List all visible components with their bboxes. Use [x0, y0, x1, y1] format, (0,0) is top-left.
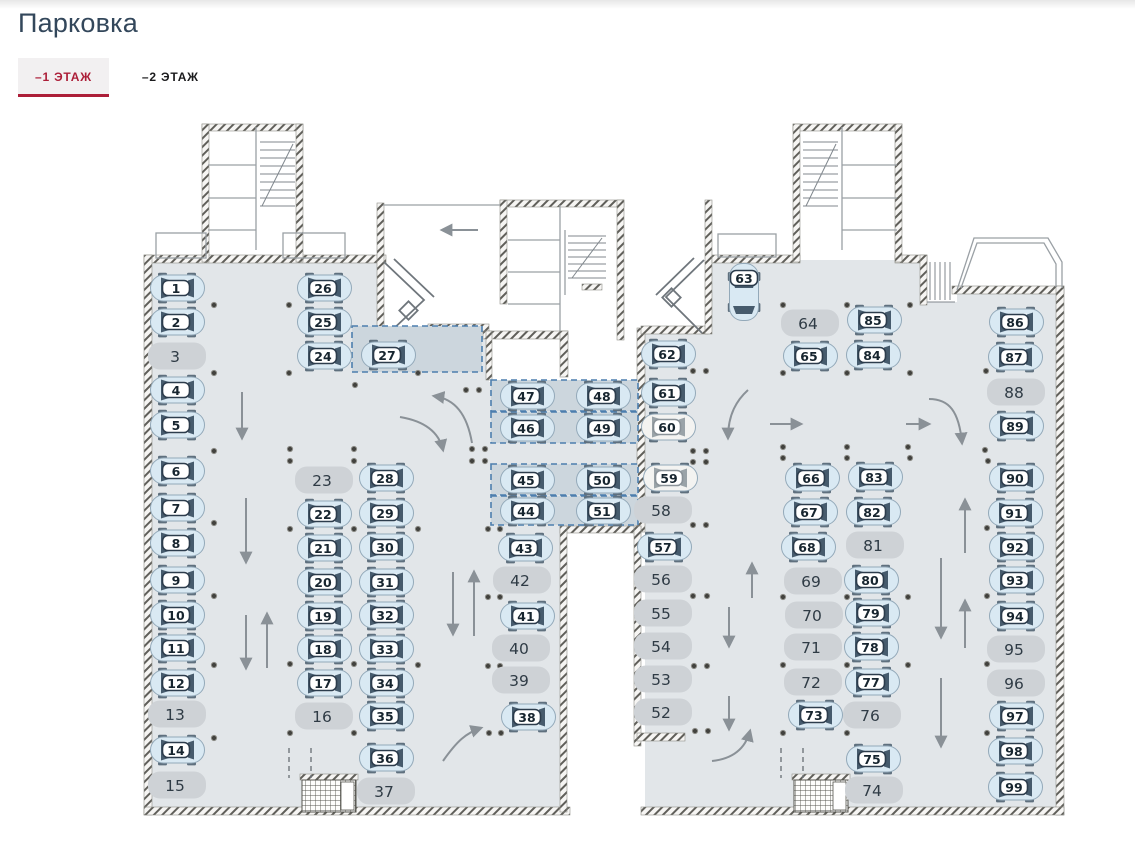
- spot-number: 91: [1005, 506, 1022, 521]
- parking-spot-58[interactable]: 58: [634, 497, 692, 524]
- pillar-dot: [286, 370, 291, 375]
- parking-spot-12[interactable]: 12: [151, 668, 205, 699]
- pillar-dot: [905, 662, 910, 667]
- parking-spot-54[interactable]: 54: [634, 633, 692, 660]
- spot-number: 81: [863, 537, 883, 555]
- pillar-dot: [780, 662, 785, 667]
- spot-number: 68: [798, 540, 815, 555]
- pillar-dot: [704, 663, 709, 668]
- parking-spot-92[interactable]: 92: [990, 532, 1044, 563]
- spot-number: 70: [802, 607, 822, 625]
- spot-number: 93: [1006, 573, 1023, 588]
- pillar-dot: [844, 302, 849, 307]
- parking-spot-82[interactable]: 82: [847, 497, 901, 528]
- spot-number: 34: [376, 676, 394, 691]
- parking-spot-11[interactable]: 11: [151, 633, 205, 664]
- spot-number: 85: [864, 313, 881, 328]
- parking-spot-96[interactable]: 96: [987, 670, 1045, 697]
- parking-spot-63[interactable]: 63: [728, 264, 761, 321]
- parking-spot-48[interactable]: 48: [577, 381, 631, 412]
- pillar-dot: [485, 594, 490, 599]
- spot-number: 26: [314, 281, 332, 296]
- parking-spot-99[interactable]: 99: [989, 772, 1043, 803]
- pillar-dot: [983, 368, 988, 373]
- spot-number: 72: [801, 674, 821, 692]
- parking-spot-30[interactable]: 30: [360, 532, 414, 563]
- spot-number: 58: [651, 502, 671, 520]
- spot-number: 78: [861, 640, 878, 655]
- spot-number: 65: [800, 349, 817, 364]
- parking-spot-9[interactable]: 9: [151, 565, 205, 596]
- parking-spot-18[interactable]: 18: [298, 634, 352, 665]
- spot-number: 28: [376, 471, 393, 486]
- parking-spot-16[interactable]: 16: [295, 703, 353, 730]
- pillar-dot: [351, 661, 356, 666]
- spot-number: 47: [517, 389, 534, 404]
- spot-number: 32: [376, 608, 393, 623]
- pillar-dot: [287, 446, 292, 451]
- parking-spot-79[interactable]: 79: [846, 598, 900, 629]
- pillar-dot: [690, 593, 695, 598]
- spot-number: 15: [165, 777, 185, 795]
- parking-spot-60[interactable]: 60: [642, 412, 696, 443]
- pillar-dot: [780, 370, 785, 375]
- spot-number: 42: [510, 572, 530, 590]
- pillar-dot: [907, 302, 912, 307]
- pillar-dot: [497, 594, 502, 599]
- pillar-dot: [482, 458, 487, 463]
- pillar-dot: [704, 593, 709, 598]
- pillar-dot: [469, 458, 474, 463]
- parking-spot-38[interactable]: 38: [502, 702, 556, 733]
- spot-number: 41: [517, 609, 534, 624]
- parking-spot-83[interactable]: 83: [849, 462, 903, 493]
- pillar-dot: [984, 525, 989, 530]
- parking-spot-20[interactable]: 20: [298, 567, 352, 598]
- spot-number: 63: [735, 271, 752, 286]
- parking-spot-91[interactable]: 91: [989, 498, 1043, 529]
- parking-spot-90[interactable]: 90: [990, 463, 1044, 494]
- parking-spot-31[interactable]: 31: [360, 567, 414, 598]
- pillar-dot: [415, 662, 420, 667]
- spot-number: 56: [651, 571, 671, 589]
- parking-spot-45[interactable]: 45: [501, 465, 555, 496]
- pillar-dot: [351, 526, 356, 531]
- pillar-dot: [984, 593, 989, 598]
- spot-number: 50: [593, 473, 611, 488]
- pillar-dot: [844, 662, 849, 667]
- parking-spot-76[interactable]: 76: [843, 702, 901, 729]
- parking-spot-32[interactable]: 32: [360, 600, 414, 631]
- parking-spot-71[interactable]: 71: [784, 634, 842, 661]
- pillar-dot: [211, 302, 216, 307]
- pillar-dot: [352, 382, 357, 387]
- parking-spot-1[interactable]: 1: [151, 273, 205, 304]
- pillar-dot: [690, 522, 695, 527]
- spot-number: 36: [376, 751, 394, 766]
- parking-spot-78[interactable]: 78: [845, 632, 899, 663]
- parking-spot-98[interactable]: 98: [989, 736, 1043, 767]
- parking-spot-41[interactable]: 41: [501, 601, 555, 632]
- pillar-dot: [498, 730, 503, 735]
- spot-number: 37: [374, 783, 394, 801]
- pillar-dot: [287, 526, 292, 531]
- parking-spot-25[interactable]: 25: [298, 307, 352, 338]
- spot-number: 46: [517, 421, 535, 436]
- spot-number: 75: [863, 752, 880, 767]
- spot-number: 3: [170, 348, 180, 366]
- parking-spot-81[interactable]: 81: [846, 532, 904, 559]
- parking-spot-14[interactable]: 14: [151, 735, 205, 766]
- pillar-dot: [415, 370, 420, 375]
- parking-spot-27[interactable]: 27: [362, 340, 416, 371]
- parking-spot-66[interactable]: 66: [786, 463, 840, 494]
- pillar-dot: [486, 730, 491, 735]
- pillar-dot: [287, 730, 292, 735]
- parking-spot-65[interactable]: 65: [784, 341, 838, 372]
- spot-number: 12: [167, 676, 184, 691]
- spot-number: 1: [172, 281, 181, 296]
- spot-number: 33: [376, 642, 393, 657]
- spot-number: 43: [515, 541, 532, 556]
- pillar-dot: [844, 370, 849, 375]
- canopy-right: [718, 234, 776, 257]
- parking-spot-28[interactable]: 28: [360, 463, 414, 494]
- spot-number: 84: [863, 348, 881, 363]
- pillar-dot: [351, 458, 356, 463]
- parking-spot-68[interactable]: 68: [782, 532, 836, 563]
- pillar-dot: [905, 594, 910, 599]
- pillar-dot: [982, 447, 987, 452]
- spot-number: 69: [801, 573, 821, 591]
- spot-number: 66: [802, 471, 820, 486]
- parking-spot-40[interactable]: 40: [492, 635, 550, 662]
- parking-spot-39[interactable]: 39: [492, 667, 550, 694]
- pillar-dot: [844, 594, 849, 599]
- parking-spot-55[interactable]: 55: [634, 600, 692, 627]
- parking-spot-84[interactable]: 84: [847, 340, 901, 371]
- spot-number: 67: [800, 505, 817, 520]
- pillar-dot: [780, 594, 785, 599]
- car-rear-window: [733, 306, 755, 314]
- spot-number: 99: [1005, 780, 1022, 795]
- parking-spot-97[interactable]: 97: [990, 701, 1044, 732]
- spot-number: 44: [517, 504, 535, 519]
- spot-number: 92: [1006, 540, 1023, 555]
- parking-spot-70[interactable]: 70: [785, 602, 843, 629]
- spot-number: 96: [1004, 675, 1024, 693]
- pillar-dot: [705, 728, 710, 733]
- pillar-dot: [476, 387, 481, 392]
- parking-spot-46[interactable]: 46: [501, 413, 555, 444]
- spot-number: 83: [865, 470, 882, 485]
- pillar-dot: [287, 458, 292, 463]
- pillar-dot: [469, 446, 474, 451]
- canopy-left-a: [156, 233, 206, 258]
- spot-number: 95: [1004, 641, 1024, 659]
- parking-spot-10[interactable]: 10: [151, 600, 205, 631]
- parking-spot-51[interactable]: 51: [577, 496, 631, 527]
- parking-spot-21[interactable]: 21: [298, 533, 352, 564]
- spot-number: 48: [593, 389, 610, 404]
- pillar-dot: [703, 522, 708, 527]
- parking-spot-56[interactable]: 56: [634, 566, 692, 593]
- spot-number: 74: [862, 782, 882, 800]
- spot-number: 80: [861, 573, 879, 588]
- parking-spot-47[interactable]: 47: [501, 381, 555, 412]
- parking-spot-59[interactable]: 59: [644, 463, 698, 494]
- entry-stairs-treads: [927, 262, 955, 302]
- spot-number: 77: [862, 675, 879, 690]
- parking-spot-3[interactable]: 3: [148, 343, 206, 370]
- pillar-dot: [497, 526, 502, 531]
- spot-number: 60: [658, 420, 676, 435]
- pillar-dot: [984, 730, 989, 735]
- parking-spot-77[interactable]: 77: [846, 667, 900, 698]
- spot-number: 16: [312, 708, 332, 726]
- spot-number: 7: [172, 501, 181, 516]
- spot-number: 89: [1006, 419, 1023, 434]
- parking-spot-86[interactable]: 86: [990, 307, 1044, 338]
- pillar-dot: [463, 387, 468, 392]
- spot-number: 62: [658, 347, 675, 362]
- pillar-dot: [287, 661, 292, 666]
- spot-number: 71: [801, 639, 821, 657]
- pillar-dot: [984, 661, 989, 666]
- pillar-dot: [691, 663, 696, 668]
- pillar-dot: [211, 593, 216, 598]
- spot-number: 14: [167, 743, 185, 758]
- spot-number: 23: [312, 472, 332, 490]
- pillar-dot: [780, 730, 785, 735]
- spot-number: 5: [172, 418, 181, 433]
- pillar-dot: [690, 368, 695, 373]
- pillar-dot: [905, 444, 910, 449]
- parking-spot-80[interactable]: 80: [845, 565, 899, 596]
- spot-number: 38: [518, 710, 535, 725]
- spot-number: 24: [314, 349, 332, 364]
- pillar-dot: [780, 455, 785, 460]
- spot-number: 45: [517, 473, 534, 488]
- spot-number: 17: [314, 676, 331, 691]
- spot-number: 61: [658, 386, 675, 401]
- spot-number: 8: [172, 536, 181, 551]
- parking-spot-85[interactable]: 85: [848, 305, 902, 336]
- parking-spot-93[interactable]: 93: [990, 565, 1044, 596]
- parking-spot-72[interactable]: 72: [784, 669, 842, 696]
- spot-number: 88: [1004, 384, 1024, 402]
- spot-number: 30: [376, 540, 394, 555]
- parking-spot-44[interactable]: 44: [501, 496, 555, 527]
- pillar-dot: [482, 446, 487, 451]
- pillar-dot: [703, 459, 708, 464]
- pillar-dot: [211, 520, 216, 525]
- pillar-dot: [211, 370, 216, 375]
- pillar-dot: [211, 662, 216, 667]
- parking-spot-62[interactable]: 62: [642, 339, 696, 370]
- pillar-dot: [844, 730, 849, 735]
- pillar-dot: [844, 455, 849, 460]
- parking-spot-52[interactable]: 52: [634, 699, 692, 726]
- pillar-dot: [703, 448, 708, 453]
- parking-spot-64[interactable]: 64: [781, 310, 839, 337]
- parking-spot-4[interactable]: 4: [151, 375, 205, 406]
- spot-number: 9: [172, 573, 181, 588]
- parking-spot-88[interactable]: 88: [987, 379, 1045, 406]
- spot-number: 18: [314, 642, 331, 657]
- spot-number: 98: [1005, 744, 1022, 759]
- parking-spot-53[interactable]: 53: [634, 666, 692, 693]
- parking-spot-22[interactable]: 22: [298, 499, 352, 530]
- parking-spot-43[interactable]: 43: [499, 533, 553, 564]
- pillar-dot: [692, 728, 697, 733]
- pillar-dot: [485, 663, 490, 668]
- spot-number: 53: [651, 671, 671, 689]
- parking-spot-5[interactable]: 5: [151, 410, 205, 441]
- spot-number: 29: [376, 506, 393, 521]
- spot-number: 31: [376, 575, 393, 590]
- spot-number: 87: [1005, 350, 1022, 365]
- parking-spot-37[interactable]: 37: [357, 778, 415, 805]
- parking-spot-29[interactable]: 29: [360, 498, 414, 529]
- parking-spot-95[interactable]: 95: [987, 636, 1045, 663]
- spot-number: 54: [651, 638, 671, 656]
- spot-number: 21: [314, 541, 331, 556]
- parking-spot-7[interactable]: 7: [151, 493, 205, 524]
- parking-spot-23[interactable]: 23: [295, 467, 353, 494]
- parking-spot-2[interactable]: 2: [151, 307, 205, 338]
- spot-number: 40: [509, 640, 529, 658]
- parking-spot-34[interactable]: 34: [360, 668, 414, 699]
- spot-number: 27: [378, 348, 395, 363]
- parking-spot-61[interactable]: 61: [642, 378, 696, 409]
- spot-number: 57: [654, 540, 671, 555]
- spot-number: 10: [167, 608, 185, 623]
- spot-number: 51: [593, 504, 610, 519]
- pillar-dot: [780, 302, 785, 307]
- spot-number: 22: [314, 507, 331, 522]
- spot-number: 82: [863, 505, 880, 520]
- pillar-dot: [351, 730, 356, 735]
- spot-number: 20: [314, 575, 332, 590]
- parking-spot-8[interactable]: 8: [151, 528, 205, 559]
- spot-number: 86: [1006, 315, 1024, 330]
- parking-spot-49[interactable]: 49: [577, 413, 631, 444]
- pillar-dot: [780, 444, 785, 449]
- parking-spot-19[interactable]: 19: [298, 601, 352, 632]
- parking-spot-73[interactable]: 73: [789, 700, 843, 731]
- pillar-dot: [690, 459, 695, 464]
- parking-spot-6[interactable]: 6: [151, 456, 205, 487]
- spot-number: 73: [805, 708, 822, 723]
- spot-number: 59: [660, 471, 677, 486]
- spot-number: 79: [862, 606, 879, 621]
- spot-number: 19: [314, 609, 331, 624]
- parking-spot-15[interactable]: 15: [148, 772, 206, 799]
- pillar-dot: [211, 448, 216, 453]
- pillar-dot: [690, 448, 695, 453]
- spot-number: 64: [798, 315, 818, 333]
- parking-spot-36[interactable]: 36: [360, 743, 414, 774]
- pillar-dot: [415, 526, 420, 531]
- parking-spot-13[interactable]: 13: [148, 701, 206, 728]
- parking-spot-33[interactable]: 33: [360, 634, 414, 665]
- spot-number: 11: [167, 641, 184, 656]
- spot-number: 55: [651, 605, 671, 623]
- parking-spot-89[interactable]: 89: [990, 411, 1044, 442]
- spot-number: 4: [172, 383, 181, 398]
- parking-spot-69[interactable]: 69: [784, 568, 842, 595]
- spot-number: 49: [593, 421, 610, 436]
- parking-spot-94[interactable]: 94: [990, 601, 1044, 632]
- spot-number: 35: [376, 709, 393, 724]
- spot-number: 2: [172, 315, 181, 330]
- parking-spot-57[interactable]: 57: [638, 532, 692, 563]
- parking-spot-35[interactable]: 35: [360, 701, 414, 732]
- parking-floor-plan: 1234567891011121314151617181920212223242…: [0, 0, 1135, 846]
- pillar-dot: [985, 458, 990, 463]
- pillar-dot: [211, 735, 216, 740]
- parking-spot-74[interactable]: 74: [845, 777, 903, 804]
- parking-spot-42[interactable]: 42: [493, 567, 551, 594]
- spot-number: 13: [165, 706, 185, 724]
- pillar-dot: [485, 526, 490, 531]
- parking-spot-26[interactable]: 26: [298, 273, 352, 304]
- parking-spot-87[interactable]: 87: [989, 342, 1043, 373]
- pillar-dot: [703, 368, 708, 373]
- parking-spot-75[interactable]: 75: [847, 744, 901, 775]
- pillar-dot: [286, 302, 291, 307]
- pillar-dot: [907, 370, 912, 375]
- pillar-dot: [844, 444, 849, 449]
- spot-number: 39: [509, 672, 529, 690]
- spot-number: 90: [1006, 471, 1024, 486]
- parking-spot-24[interactable]: 24: [298, 341, 352, 372]
- spot-number: 6: [172, 464, 181, 479]
- pillar-dot: [907, 455, 912, 460]
- spot-number: 94: [1006, 609, 1024, 624]
- parking-spot-67[interactable]: 67: [784, 497, 838, 528]
- pillar-dot: [351, 446, 356, 451]
- parking-spot-50[interactable]: 50: [577, 465, 631, 496]
- spot-number: 52: [651, 704, 671, 722]
- spot-number: 97: [1006, 709, 1023, 724]
- spot-number: 76: [860, 707, 880, 725]
- parking-spot-17[interactable]: 17: [298, 668, 352, 699]
- spot-number: 25: [314, 315, 331, 330]
